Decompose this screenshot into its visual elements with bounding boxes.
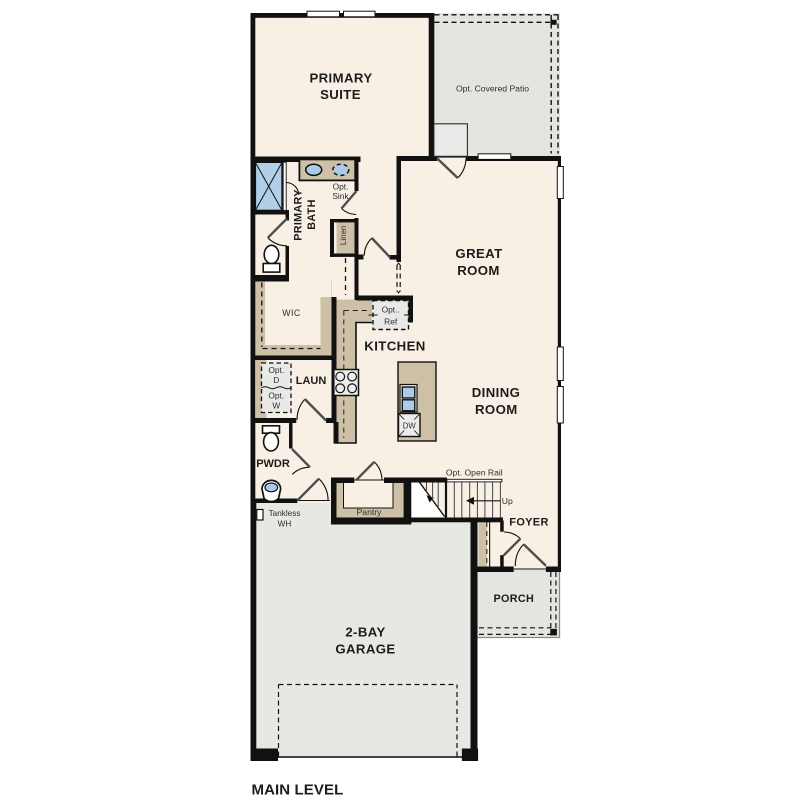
svg-text:W: W xyxy=(272,401,280,411)
svg-text:PRIMARY: PRIMARY xyxy=(293,189,305,241)
svg-text:Opt. Open Rail: Opt. Open Rail xyxy=(446,468,503,478)
svg-text:LAUN: LAUN xyxy=(296,375,327,387)
svg-text:GREAT: GREAT xyxy=(455,246,502,261)
svg-text:Linen: Linen xyxy=(339,226,348,246)
svg-text:WIC: WIC xyxy=(282,308,301,318)
svg-text:SUITE: SUITE xyxy=(320,87,361,102)
svg-text:D: D xyxy=(273,375,279,385)
svg-text:Opt.: Opt. xyxy=(268,391,284,401)
svg-text:KITCHEN: KITCHEN xyxy=(364,339,425,354)
svg-text:PRIMARY: PRIMARY xyxy=(309,71,372,86)
svg-text:DINING: DINING xyxy=(472,385,521,400)
svg-text:FOYER: FOYER xyxy=(509,517,548,529)
svg-text:ROOM: ROOM xyxy=(457,263,500,278)
svg-text:Opt..: Opt.. xyxy=(382,304,400,314)
svg-text:BATH: BATH xyxy=(306,199,318,229)
svg-text:MAIN LEVEL: MAIN LEVEL xyxy=(252,781,344,798)
svg-text:Sink: Sink xyxy=(332,191,349,201)
svg-text:PWDR: PWDR xyxy=(256,458,290,470)
svg-text:DW: DW xyxy=(403,421,417,430)
svg-text:Ref: Ref xyxy=(384,316,398,326)
svg-text:PORCH: PORCH xyxy=(494,593,535,605)
svg-text:Opt. Covered Patio: Opt. Covered Patio xyxy=(456,84,529,94)
svg-text:Pantry: Pantry xyxy=(357,507,383,517)
svg-text:GARAGE: GARAGE xyxy=(335,641,395,656)
svg-text:Opt.: Opt. xyxy=(333,181,349,191)
svg-text:Opt.: Opt. xyxy=(268,365,284,375)
svg-text:ROOM: ROOM xyxy=(475,402,518,417)
svg-text:2-BAY: 2-BAY xyxy=(345,625,385,640)
svg-text:WH: WH xyxy=(278,519,292,528)
svg-text:Tankless: Tankless xyxy=(269,509,301,518)
svg-text:Up: Up xyxy=(502,496,513,506)
